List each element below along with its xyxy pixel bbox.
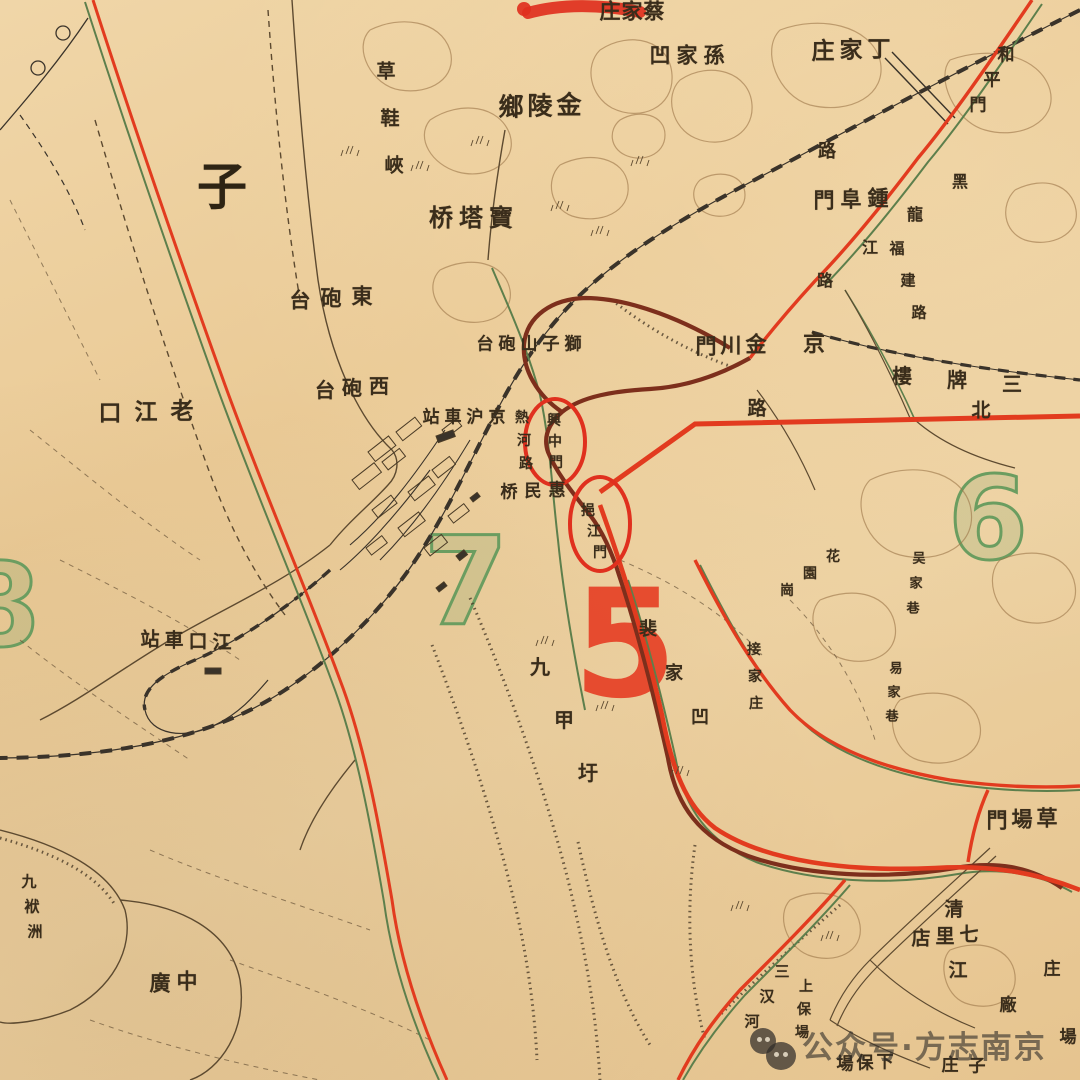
label-sunjiaao: 家: [677, 45, 698, 66]
label-huayuangang: 花: [826, 550, 840, 564]
label-chang-edge: 場: [1060, 1030, 1077, 1047]
label-zhongfumen: 鍾: [868, 188, 889, 209]
label-peijiaao: 裴: [639, 621, 657, 639]
label-rehelu: 河: [517, 434, 531, 448]
label-jing: 京: [803, 333, 825, 355]
label-jiujiaxu: 九: [530, 657, 550, 677]
label-laojiangkou: 老: [171, 400, 194, 423]
label-xiabaochang: 保: [857, 1056, 874, 1073]
label-sunjiaao: 孫: [704, 45, 725, 66]
label-peijiaao: 家: [665, 665, 683, 683]
label-yijiangmen: 挹: [581, 504, 595, 518]
label-wujiaxiang: 家: [909, 578, 922, 591]
label-jinlingxiang: 陵: [527, 94, 552, 119]
label-shangbaochang: 保: [797, 1003, 811, 1017]
label-fujianlu: 福: [889, 242, 904, 257]
label-yijiaxiang: 易: [889, 663, 902, 676]
label-jinchuanmen: 川: [721, 335, 742, 356]
label-huiminqiao: 桥: [501, 485, 518, 502]
label-caijiazhuang: 庄: [600, 1, 621, 22]
label-zhongguang: 廣: [150, 973, 171, 994]
map-labels-layer: 庄家蔡凹家孫庄家丁鄉陵金桥塔寶門阜鍾台砲東台砲西台砲山子獅站車沪京桥民惠門川金京…: [0, 0, 1080, 1080]
label-lu-top: 路: [818, 143, 836, 161]
label-dongpaotai: 砲: [321, 288, 342, 309]
label-wujiaxiang: 巷: [906, 603, 919, 616]
label-jiejiazhuang: 家: [748, 670, 762, 684]
label-jiangkouchezhan: 站: [140, 631, 159, 650]
label-dongpaotai: 台: [290, 290, 311, 311]
label-heilongjianglu: 江: [862, 240, 878, 256]
label-xingzhongmen: 興: [547, 414, 561, 428]
label-peijiaao: 凹: [691, 709, 709, 727]
label-shizishanpaotai: 砲: [499, 337, 516, 354]
label-xipaotai: 台: [315, 380, 335, 400]
label-baotaqiao: 桥: [429, 206, 453, 230]
label-qilidian: 里: [935, 928, 954, 947]
label-laojiangkou: 口: [99, 402, 122, 425]
label-shizishanpaotai: 子: [543, 337, 560, 354]
label-zhongfumen: 阜: [841, 189, 862, 210]
label-huiminqiao: 民: [525, 484, 542, 501]
label-xipaotai: 砲: [342, 378, 362, 398]
label-yijiaxiang: 巷: [885, 711, 898, 724]
label-zi-large: 子: [197, 162, 247, 212]
label-caochangmen: 門: [987, 810, 1008, 831]
label-dongpaotai: 東: [352, 286, 373, 307]
label-jiangkouchezhan: 口: [188, 633, 207, 652]
map-canvas: 5768: [0, 0, 1080, 1080]
label-shangbaochang: 上: [799, 980, 813, 994]
label-shizishanpaotai: 山: [521, 337, 538, 354]
label-heilongjianglu: 黑: [952, 174, 968, 190]
label-sunjiaao: 凹: [650, 45, 671, 66]
label-xingzhongmen: 中: [548, 435, 562, 449]
label-shangbaochang: 場: [795, 1026, 809, 1040]
label-jiufuzhou: 洲: [27, 925, 42, 940]
label-jiang: 江: [948, 962, 967, 981]
label-jinghuchezhan: 京: [489, 410, 506, 427]
label-jinlingxiang: 金: [556, 93, 581, 118]
label-shizishanpaotai: 獅: [565, 337, 582, 354]
label-hepingmen: 和: [998, 48, 1015, 65]
label-sanchahe: 河: [744, 1015, 759, 1030]
label-jiujiaxu: 圩: [578, 763, 598, 783]
label-zhuang-edge: 庄: [1044, 962, 1061, 979]
label-heilongjianglu: 路: [817, 273, 833, 289]
label-jiejiazhuang: 接: [747, 643, 761, 657]
label-hepingmen: 平: [984, 73, 1001, 90]
label-yijiaxiang: 家: [887, 687, 900, 700]
label-jiejiazhuang: 庄: [749, 697, 763, 711]
label-sanpailou: 樓: [892, 366, 912, 386]
label-xingzhongmen: 門: [549, 456, 563, 470]
label-qilidian: 店: [911, 930, 930, 949]
label-xipaotai: 西: [369, 376, 389, 396]
label-caochangmen: 草: [1037, 808, 1058, 829]
label-jinghuchezhan: 沪: [467, 410, 484, 427]
label-caoxiexia: 鞋: [380, 110, 399, 129]
label-fujianlu: 路: [911, 306, 926, 321]
label-jiangkouchezhan: 車: [164, 632, 183, 651]
label-caijiazhuang: 蔡: [644, 1, 665, 22]
label-jinlingxiang: 鄉: [498, 95, 523, 120]
label-caochangmen: 場: [1012, 809, 1033, 830]
label-xiabaochang: 場: [837, 1057, 854, 1074]
label-jinchuanmen: 門: [696, 336, 717, 357]
label-dingjiazhuang: 家: [840, 39, 863, 62]
label-rehelu: 熱: [515, 411, 529, 425]
label-zhongfumen: 門: [814, 190, 835, 211]
label-laojiangkou: 江: [135, 401, 158, 424]
label-jinchuanmen: 金: [746, 334, 767, 355]
label-baotaqiao: 寶: [489, 206, 513, 230]
label-hepingmen: 門: [970, 98, 987, 115]
label-jiufuzhou: 袱: [24, 900, 39, 915]
label-sanchahe: 三: [774, 965, 789, 980]
label-sanpailou: 三: [1002, 374, 1022, 394]
label-jiangkouchezhan: 江: [212, 634, 231, 653]
label-huayuangang: 園: [803, 567, 817, 581]
label-yijiangmen: 門: [593, 546, 607, 560]
label-huayuangang: 崗: [780, 584, 794, 598]
label-zhongguang: 中: [177, 971, 198, 992]
label-jinghuchezhan: 車: [445, 410, 462, 427]
label-lu-mid: 路: [747, 400, 766, 419]
label-wujiaxiang: 吴: [912, 553, 925, 566]
label-jiujiaxu: 甲: [554, 710, 574, 730]
label-bei: 北: [971, 402, 990, 421]
label-yijiangmen: 江: [587, 525, 601, 539]
label-dingjiazhuang: 庄: [812, 40, 835, 63]
label-zhuangzi: 庄: [942, 1058, 959, 1075]
label-baotaqiao: 塔: [459, 206, 483, 230]
label-qing: 清: [944, 901, 963, 920]
label-chang-factory: 廠: [1000, 998, 1017, 1015]
label-shizishanpaotai: 台: [477, 337, 494, 354]
label-xiabaochang: 下: [877, 1055, 894, 1072]
label-huiminqiao: 惠: [549, 483, 566, 500]
label-dingjiazhuang: 丁: [868, 38, 891, 61]
label-sanchahe: 汉: [759, 990, 774, 1005]
label-zhuangzi: 子: [969, 1059, 986, 1076]
label-rehelu: 路: [519, 457, 533, 471]
label-fujianlu: 建: [900, 274, 915, 289]
label-heilongjianglu: 龍: [907, 207, 923, 223]
label-jinghuchezhan: 站: [423, 410, 440, 427]
label-caoxiexia: 峽: [384, 157, 403, 176]
label-sanpailou: 牌: [947, 370, 967, 390]
label-jiufuzhou: 九: [21, 875, 36, 890]
label-caoxiexia: 草: [376, 63, 395, 82]
label-caijiazhuang: 家: [622, 1, 643, 22]
label-qilidian: 七: [959, 926, 978, 945]
